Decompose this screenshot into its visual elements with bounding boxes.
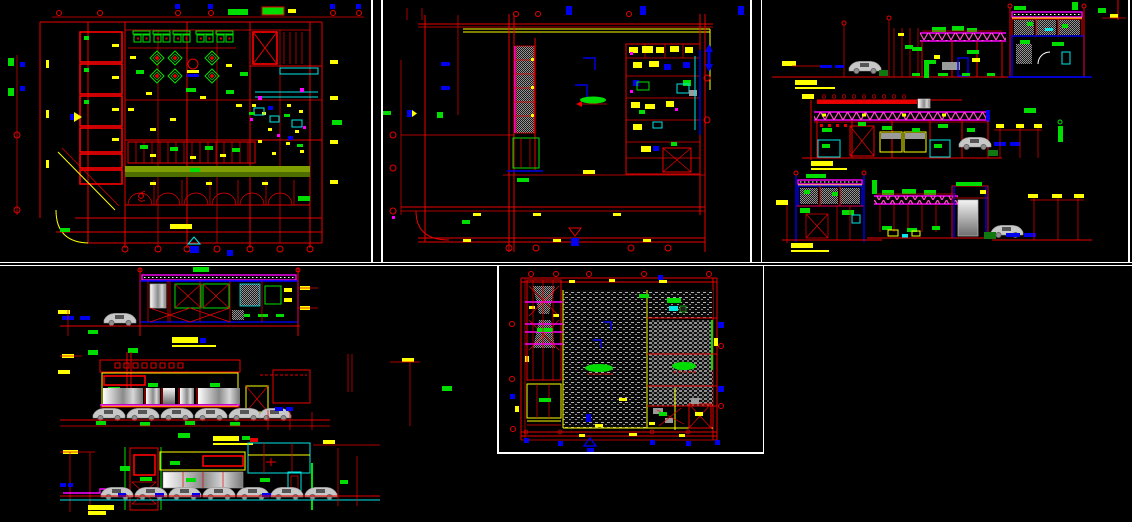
- grid-bubbles: [390, 6, 744, 251]
- divider-v3: [750, 0, 752, 263]
- column-grid: [401, 8, 713, 252]
- car-icon: [93, 408, 125, 420]
- grid-bubbles-bottom: [122, 237, 313, 256]
- stair-block: [527, 384, 561, 425]
- braced-bay: [253, 32, 318, 97]
- service-tower: [525, 280, 563, 380]
- elevation-b: [58, 348, 452, 445]
- elevation-c: [60, 433, 380, 515]
- viewport-roof-plan: [499, 266, 762, 452]
- grid-bubbles-top: [52, 4, 364, 17]
- viewport-elevations-right: [762, 0, 1128, 261]
- title-bar: [791, 243, 813, 248]
- car-icon: [959, 137, 991, 149]
- car-icon: [101, 487, 133, 499]
- olive-band: [125, 166, 310, 172]
- divider-h2: [0, 265, 1132, 267]
- car-icon: [849, 61, 881, 73]
- divider-v1: [371, 0, 373, 263]
- divider-v4: [761, 0, 763, 263]
- divider-roofplan-right: [763, 265, 765, 453]
- viewport-upper-floor-plan: [383, 0, 750, 261]
- elevation-b: [802, 64, 1042, 170]
- title-bar: [172, 337, 198, 343]
- title-bar: [213, 436, 239, 441]
- divider-roofplan-bottom: [497, 452, 764, 454]
- car-icon: [305, 487, 337, 499]
- viewport-ground-floor-plan: [0, 0, 371, 261]
- diamond-planters: [150, 51, 219, 83]
- car-icon: [161, 408, 193, 420]
- furniture-cluster: [626, 44, 700, 174]
- car-icon: [203, 487, 235, 499]
- section-a: [58, 267, 318, 347]
- car-icon: [104, 313, 136, 325]
- title-bar: [811, 161, 833, 166]
- title-bar: [88, 505, 114, 510]
- olive-band-dark: [125, 172, 310, 177]
- car-icon: [127, 408, 159, 420]
- divider-v2: [381, 0, 383, 263]
- open-hall-marks: [575, 58, 607, 107]
- mezzanine-strip: [514, 46, 535, 133]
- booth-seating: [128, 31, 236, 48]
- cad-sheet: [0, 0, 1132, 522]
- accessible-parking-symbol: [138, 191, 145, 201]
- title-bar: [795, 80, 817, 85]
- divider-roofplan-left: [497, 265, 499, 453]
- elevation-a: [772, 0, 1126, 89]
- car-icon: [229, 408, 261, 420]
- viewport-elevations-left: [0, 266, 497, 522]
- north-arrow-icon: [584, 438, 596, 446]
- stair-run: [507, 138, 543, 182]
- column-grid: [14, 22, 322, 248]
- car-icon: [271, 487, 303, 499]
- divider-h1: [0, 262, 1132, 264]
- car-icon: [195, 408, 227, 420]
- room-block-left: [80, 32, 122, 184]
- kitchen-line: [128, 142, 255, 163]
- service-zone: [249, 104, 306, 155]
- divider-v5: [1128, 0, 1130, 263]
